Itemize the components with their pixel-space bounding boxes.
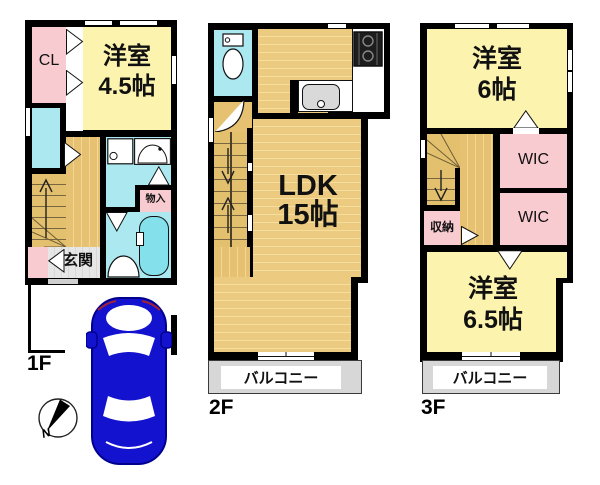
- door-room6: [513, 110, 539, 129]
- window-2f-left: [208, 118, 214, 142]
- door-bath-down: [106, 212, 128, 232]
- wic1-label: WIC: [500, 152, 567, 169]
- balcony-3f-box: バルコニー: [433, 366, 547, 389]
- kitchen-sink-drain: [317, 100, 325, 108]
- monoire-label: 物入: [140, 195, 171, 205]
- window-1f-left: [25, 108, 31, 136]
- stove-icon: [353, 31, 383, 67]
- hall-lower-2f: [214, 247, 250, 277]
- door-room65: [497, 250, 523, 270]
- window-3f-right-2: [567, 72, 573, 92]
- room45-name: 洋室: [83, 45, 171, 70]
- door-hall-washroom: [64, 142, 82, 168]
- wic2-label: WIC: [500, 210, 567, 227]
- window-3f-top-1: [455, 23, 489, 29]
- ldk-size: 15帖: [247, 200, 369, 230]
- room-western-65-ext: [556, 252, 567, 278]
- ldk-name: LDK: [247, 171, 369, 201]
- window-3f-left: [420, 140, 426, 158]
- bathtub-faucet: [136, 232, 144, 246]
- window-1f-top-1: [85, 20, 112, 26]
- door-arc-2f: [214, 98, 246, 133]
- room6-name: 洋室: [427, 46, 567, 72]
- room45-size: 4.5帖: [83, 75, 171, 100]
- stairs-down-arrow-2f: [221, 148, 235, 185]
- stairs-up-arrow-1f: [39, 178, 53, 242]
- shoe-closet: [28, 247, 48, 278]
- balcony-3f-label: バルコニー: [453, 367, 528, 388]
- floor-label-3f: 3F: [421, 396, 446, 420]
- wall-wic-left: [493, 134, 500, 245]
- stairs-down-arrow-3f: [434, 170, 448, 202]
- toilet-icon-2f: [221, 33, 245, 85]
- door-storage-3f: [461, 226, 479, 245]
- ldk-floor-lower: [214, 277, 351, 352]
- parking-line-bottom: [28, 350, 65, 353]
- floor-label-1f: 1F: [27, 352, 52, 376]
- cl-label: CL: [32, 53, 66, 70]
- floor-label-2f: 2F: [209, 396, 234, 420]
- sink-icon-1f: [134, 138, 171, 165]
- bath-counter-arc: [107, 254, 140, 278]
- room6-size: 6帖: [427, 77, 567, 103]
- balcony-2f-box: バルコニー: [221, 366, 341, 389]
- door-cl-1: [66, 29, 84, 55]
- washing-machine-icon: [107, 138, 134, 165]
- window-3f-top-2: [497, 23, 529, 29]
- door-bath-up: [148, 166, 170, 186]
- door-cl-2: [66, 70, 84, 96]
- storage-label-3f: 収納: [424, 221, 460, 233]
- stairs-up-arrow-2f: [221, 197, 235, 234]
- door-gap-room6: [513, 128, 539, 134]
- entrance-step: [48, 279, 78, 284]
- parking-line-left: [28, 285, 31, 353]
- window-3f-right-1: [567, 50, 573, 70]
- wall-kitchen-bottom: [328, 112, 390, 119]
- room65-size: 6.5帖: [427, 307, 559, 333]
- window-2f-top: [328, 23, 346, 29]
- compass-icon: N: [36, 396, 80, 440]
- floorplan-canvas: 物入 玄関 CL 洋室 4.5帖 1F: [0, 0, 600, 485]
- car-top-view: [86, 296, 172, 466]
- door-genkan: [48, 249, 65, 273]
- wall-kitchen-stub: [290, 80, 298, 115]
- window-1f-right: [171, 56, 177, 84]
- balcony-2f-label: バルコニー: [244, 367, 319, 388]
- stairs-winder-lines-3f: [427, 134, 460, 168]
- room-toilet-1f: [32, 108, 60, 168]
- room65-name: 洋室: [427, 276, 559, 302]
- window-1f-top-2: [120, 20, 157, 26]
- bathtub: [139, 216, 169, 276]
